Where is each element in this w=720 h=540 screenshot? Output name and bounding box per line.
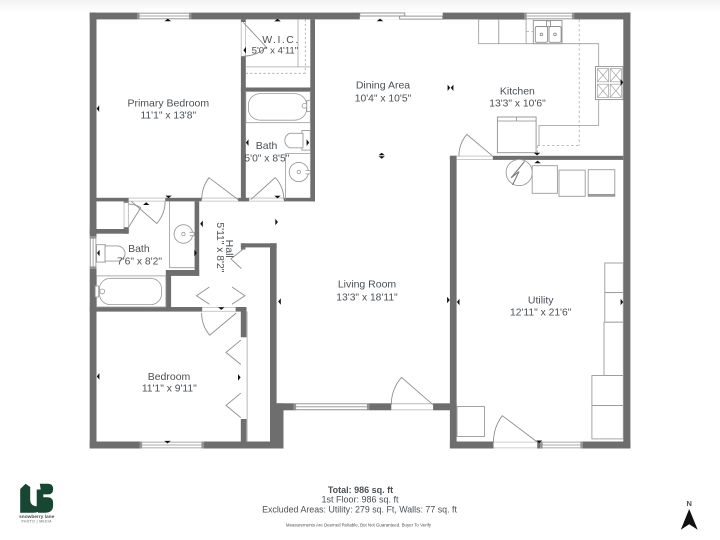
svg-text:5'0" x 8'5": 5'0" x 8'5" (244, 154, 289, 165)
svg-text:Living Room: Living Room (338, 278, 397, 290)
svg-text:PHOTO | MEDIA: PHOTO | MEDIA (21, 519, 52, 523)
svg-text:W.I.C.: W.I.C. (262, 34, 300, 46)
svg-text:Excluded Areas: Utility: 279 s: Excluded Areas: Utility: 279 sq. Ft, Wal… (262, 504, 457, 514)
svg-text:Kitchen: Kitchen (500, 86, 535, 98)
svg-text:13'3" x 10'6": 13'3" x 10'6" (489, 99, 546, 110)
svg-text:Total: 986 sq. ft: Total: 986 sq. ft (328, 485, 393, 495)
svg-text:Primary Bedroom: Primary Bedroom (127, 98, 209, 110)
svg-text:7'6" x 8'2": 7'6" x 8'2" (117, 256, 162, 267)
svg-text:Bedroom: Bedroom (148, 371, 191, 383)
svg-text:Bath: Bath (256, 140, 278, 152)
svg-text:Bath: Bath (128, 243, 150, 255)
svg-text:12'11" x 21'6": 12'11" x 21'6" (510, 307, 572, 318)
svg-text:11'1" x 13'8": 11'1" x 13'8" (140, 111, 196, 122)
svg-text:11'1" x 9'11": 11'1" x 9'11" (142, 384, 197, 395)
svg-text:5'11" x 8'2": 5'11" x 8'2" (214, 222, 225, 272)
svg-text:Dining Area: Dining Area (356, 79, 410, 91)
svg-text:10'4" x 10'5": 10'4" x 10'5" (355, 94, 412, 105)
svg-text:N: N (686, 499, 691, 508)
svg-text:5'0" x 4'11": 5'0" x 4'11" (252, 46, 299, 57)
svg-text:Measurements Are Deemed Reliab: Measurements Are Deemed Reliable, But No… (286, 522, 432, 527)
svg-text:13'3" x 18'11": 13'3" x 18'11" (336, 293, 398, 304)
svg-text:1st Floor: 986 sq. ft: 1st Floor: 986 sq. ft (321, 495, 399, 505)
svg-text:Utility: Utility (528, 294, 554, 306)
